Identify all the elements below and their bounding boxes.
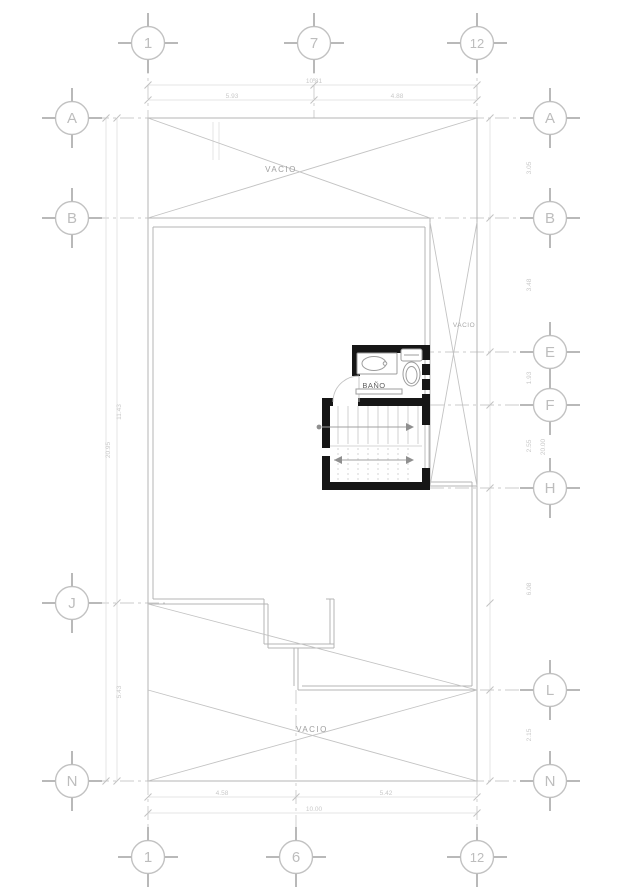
dim-left-overall: 20.95 — [105, 441, 112, 458]
floor-plan-canvas: VACIO VACIO VACIO BAÑO 10.81 5.93 4.88 4… — [0, 0, 630, 891]
grid-bubble-right-N: N — [520, 751, 580, 811]
grid-bubble-label: B — [67, 210, 77, 227]
void-label-bottom: VACIO — [296, 725, 328, 734]
grid-bubble-label: B — [545, 210, 555, 227]
stair-direction-arrows — [317, 423, 414, 464]
grid-bubble-label: N — [67, 773, 78, 790]
dim-right-seg5: 6.08 — [526, 582, 533, 595]
grid-bubble-label: F — [545, 397, 554, 414]
grid-bubble-left-B: B — [42, 188, 102, 248]
grid-bubble-label: H — [545, 480, 556, 497]
grid-bubble-top-7: 7 — [284, 13, 344, 73]
grid-bubble-label: 6 — [292, 849, 300, 866]
grid-bubble-label: 1 — [144, 35, 152, 52]
grid-bubble-bottom-6: 6 — [266, 827, 326, 887]
bathroom-door-arc — [333, 376, 359, 402]
grid-bubble-label: 12 — [470, 36, 484, 51]
grid-bubble-left-J: J — [42, 573, 102, 633]
dimension-lines — [103, 82, 494, 817]
dim-bottom-seg2: 5.42 — [380, 790, 393, 797]
grid-bubble-left-A: A — [42, 88, 102, 148]
grid-bubble-label: N — [545, 773, 556, 790]
grid-bubble-left-N: N — [42, 751, 102, 811]
grid-bubble-bottom-1: 1 — [118, 827, 178, 887]
dim-top-overall: 10.81 — [306, 78, 323, 85]
grid-bubble-label: E — [545, 344, 555, 361]
floor-plan-page: VACIO VACIO VACIO BAÑO 10.81 5.93 4.88 4… — [0, 0, 630, 891]
dim-bottom-overall: 10.00 — [306, 806, 323, 813]
void-label-top: VACIO — [265, 165, 297, 174]
grid-bubble-label: 12 — [470, 850, 484, 865]
dim-right-seg1: 3.05 — [526, 161, 533, 174]
grid-bubble-label: A — [545, 110, 555, 127]
dim-left-seg2: 5.43 — [116, 685, 123, 698]
void-label-right: VACIO — [453, 322, 475, 329]
grid-bubble-label: 7 — [310, 35, 318, 52]
dim-bottom-seg1: 4.58 — [216, 790, 229, 797]
dim-right-overall: 20.00 — [540, 438, 547, 455]
grid-bubble-top-12: 12 — [447, 13, 507, 73]
void-diagonals — [148, 118, 477, 781]
dim-right-seg2: 3.48 — [526, 278, 533, 291]
grid-bubble-right-B: B — [520, 188, 580, 248]
grid-bubble-bottom-12: 12 — [447, 827, 507, 887]
sink — [357, 353, 397, 374]
dim-top-seg1: 5.93 — [226, 93, 239, 100]
dim-left-seg1: 11.43 — [116, 404, 123, 420]
grid-bubble-right-L: L — [520, 660, 580, 720]
grid-bubble-right-A: A — [520, 88, 580, 148]
grid-bubble-label: J — [68, 595, 76, 612]
grid-bubble-label: L — [546, 682, 554, 699]
grid-bubble-top-1: 1 — [118, 13, 178, 73]
grid-bubble-right-H: H — [520, 458, 580, 518]
stair-window — [425, 425, 429, 468]
toilet — [401, 349, 422, 386]
dim-top-seg2: 4.88 — [391, 93, 404, 100]
grid-bubble-label: 1 — [144, 849, 152, 866]
dim-right-seg3: 1.93 — [526, 371, 533, 384]
grid-bubble-label: A — [67, 110, 77, 127]
room-label-bano: BAÑO — [362, 381, 385, 390]
dim-right-seg4: 2.55 — [526, 439, 533, 452]
dim-right-seg6: 2.15 — [526, 728, 533, 741]
